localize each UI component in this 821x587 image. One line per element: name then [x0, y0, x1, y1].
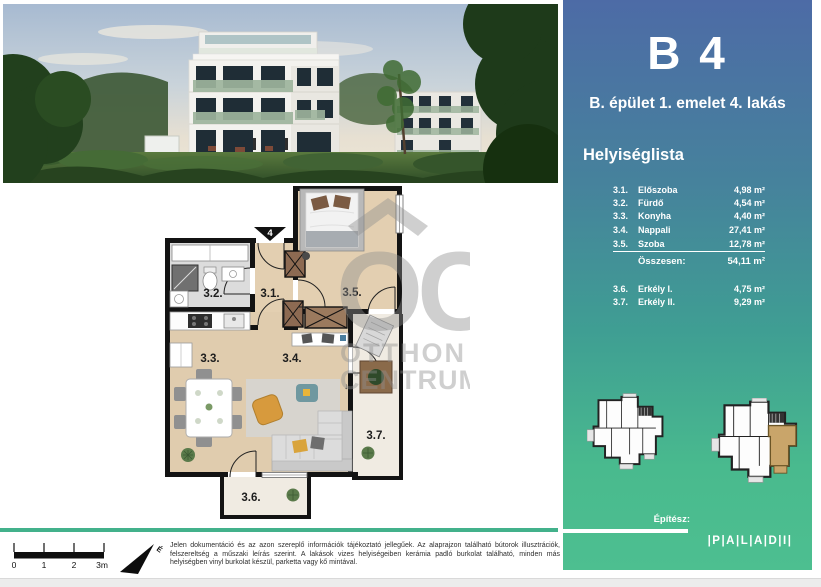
room-name: Szoba	[638, 239, 729, 249]
room-area: 4,40 m²	[734, 211, 765, 221]
north-label: É	[155, 544, 164, 554]
disclaimer-text: Jelen dokumentáció és az azon szereplő i…	[170, 542, 560, 568]
room-area: 4,54 m²	[734, 198, 765, 208]
room-name: Nappali	[638, 225, 729, 235]
room-number: 3.6.	[613, 284, 638, 294]
room-number: 3.2.	[613, 198, 638, 208]
room-number: 3.1.	[613, 185, 638, 195]
key-plan-floor	[587, 393, 669, 473]
bottom-strip	[0, 578, 821, 587]
entrance-number: 4	[267, 228, 273, 239]
building-render-photo	[3, 4, 558, 183]
label-kitchen: 3.3.	[200, 353, 219, 365]
room-number: 3.4.	[613, 225, 638, 235]
watermark-line2: CENTRUM	[340, 365, 470, 395]
label-hall: 3.1.	[260, 288, 279, 300]
footer: 0 1 2 3m É Jelen dokumentáció és az azon…	[0, 532, 558, 578]
room-area: 12,78 m²	[729, 239, 765, 249]
entrance-arrow: 4	[254, 227, 286, 241]
total-label: Összesen:	[638, 256, 728, 267]
table-row: 3.3. Konyha 4,40 m²	[613, 210, 765, 223]
key-plan-unit-highlighted	[711, 398, 804, 486]
room-name: Erkély II.	[638, 297, 734, 307]
scale-label-3: 3m	[96, 560, 108, 570]
architect-divider-line	[563, 529, 688, 533]
unit-subtitle: B. épület 1. emelet 4. lakás	[563, 95, 812, 113]
scale-label-1: 1	[42, 560, 47, 570]
architect-label: Építész:	[563, 514, 690, 525]
room-name: Konyha	[638, 211, 734, 221]
label-balcony1: 3.6.	[241, 492, 260, 504]
paladi-logo: |P|A|L|A|D|I|	[700, 535, 800, 547]
highlighted-unit	[769, 426, 797, 466]
room-number: 3.5.	[613, 239, 638, 249]
table-row: 3.2. Fürdő 4,54 m²	[613, 196, 765, 209]
room-area: 9,29 m²	[734, 297, 765, 307]
total-area: 54,11 m²	[728, 256, 766, 267]
scale-label-0: 0	[12, 560, 17, 570]
room-area: 4,75 m²	[734, 284, 765, 294]
table-row: 3.1. Előszoba 4,98 m²	[613, 183, 765, 196]
table-row: 3.6. Erkély I. 4,75 m²	[613, 282, 765, 295]
floor-plan: ↓ 4 3.1. 3.2. 3.5. 3.3. 3.4.	[0, 183, 558, 528]
room-name: Fürdő	[638, 198, 734, 208]
building-render-scene	[3, 4, 558, 183]
room-list-title: Helyiséglista	[583, 146, 684, 165]
table-row-highlighted: 3.5. Szoba 12,78 m²	[613, 237, 765, 252]
room-number: 3.3.	[613, 211, 638, 221]
apartment-datasheet: ↓ 4 3.1. 3.2. 3.5. 3.3. 3.4.	[0, 0, 821, 587]
scale-label-2: 2	[72, 560, 77, 570]
scale-bar: 0 1 2 3m	[8, 540, 116, 570]
room-number: 3.7.	[613, 297, 638, 307]
label-living: 3.4.	[282, 353, 301, 365]
watermark-line1: OTTHON	[340, 338, 466, 368]
room-list-table: 3.1. Előszoba 4,98 m² 3.2. Fürdő 4,54 m²…	[613, 183, 765, 309]
total-row: Összesen: 54,11 m²	[613, 255, 765, 268]
room-name: Előszoba	[638, 185, 734, 195]
otthon-centrum-watermark: OC OTTHON CENTRUM	[338, 190, 470, 395]
room-area: 4,98 m²	[734, 185, 765, 195]
table-row: 3.4. Nappali 27,41 m²	[613, 223, 765, 236]
label-balcony2: 3.7.	[366, 430, 385, 442]
room-name: Erkély I.	[638, 284, 734, 294]
room-area: 27,41 m²	[729, 225, 765, 235]
unit-code: B 4	[563, 26, 812, 80]
table-row: 3.7. Erkély II. 9,29 m²	[613, 295, 765, 308]
north-arrow-icon: É	[118, 538, 170, 578]
watermark-monogram: OC	[338, 229, 470, 354]
label-bath: 3.2.	[203, 288, 222, 300]
